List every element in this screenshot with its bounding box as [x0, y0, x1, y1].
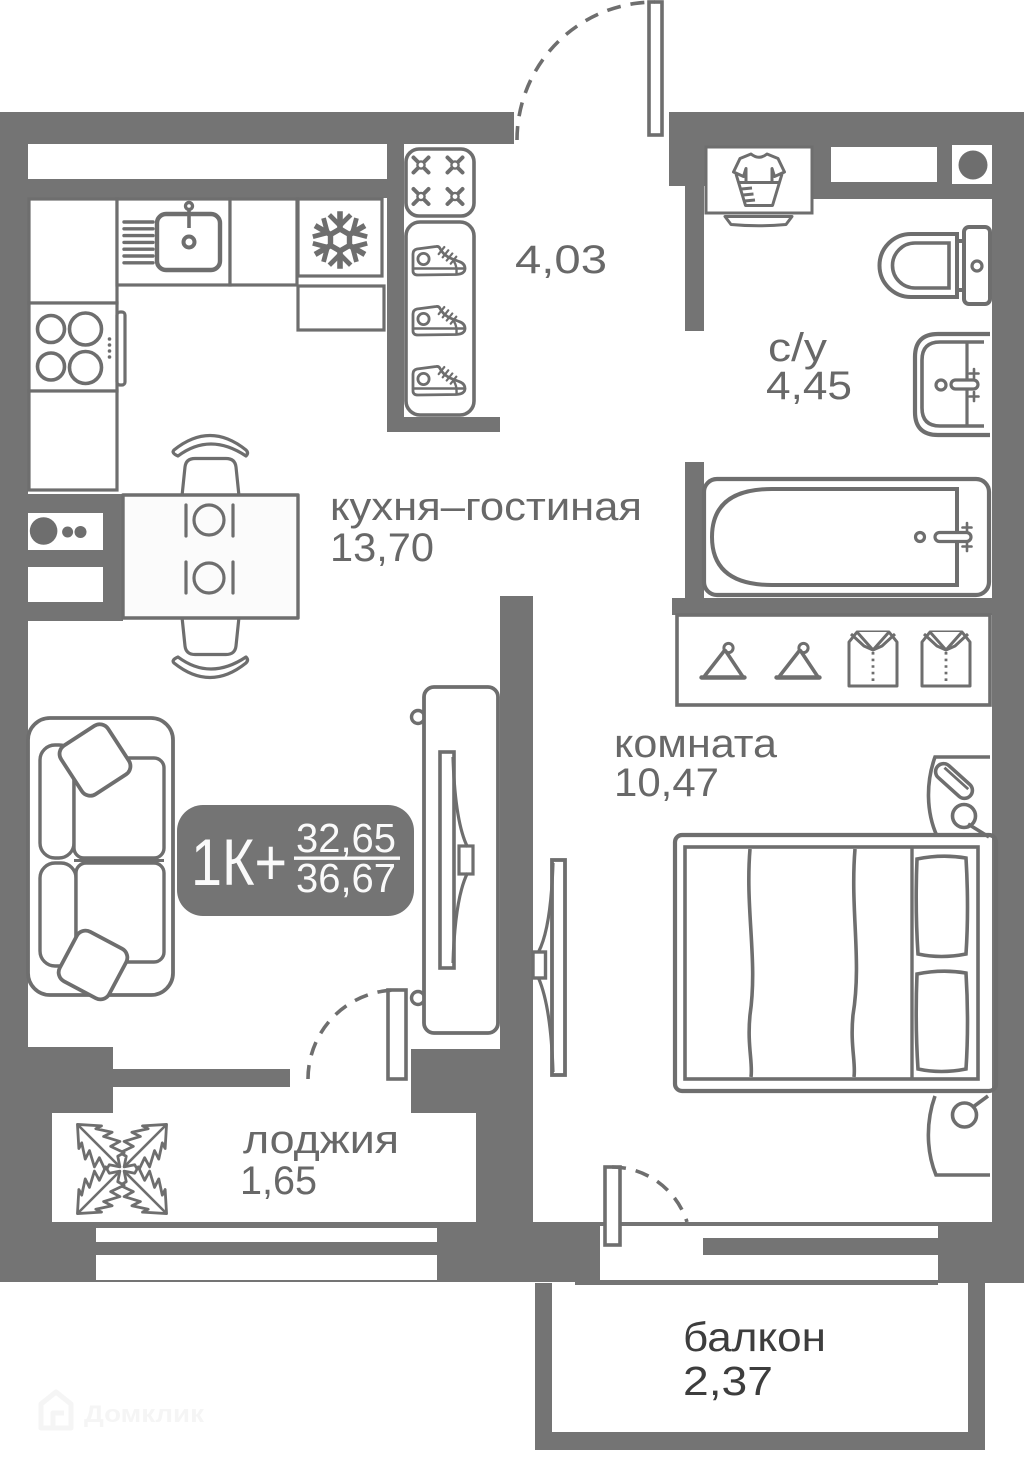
svg-text:1,65: 1,65	[240, 1159, 317, 1203]
svg-text:36,67: 36,67	[296, 855, 396, 901]
svg-text:1К+: 1К+	[191, 825, 287, 899]
svg-text:комната: комната	[614, 722, 777, 766]
svg-text:4,03: 4,03	[515, 238, 607, 282]
svg-text:10,47: 10,47	[614, 761, 719, 805]
svg-text:Домклик: Домклик	[84, 1401, 205, 1428]
svg-text:балкон: балкон	[683, 1314, 826, 1360]
svg-text:4,45: 4,45	[766, 364, 852, 408]
svg-text:2,37: 2,37	[683, 1358, 773, 1404]
svg-text:лоджия: лоджия	[243, 1118, 399, 1162]
svg-text:кухня–гостиная: кухня–гостиная	[330, 485, 642, 529]
svg-text:13,70: 13,70	[330, 526, 434, 570]
